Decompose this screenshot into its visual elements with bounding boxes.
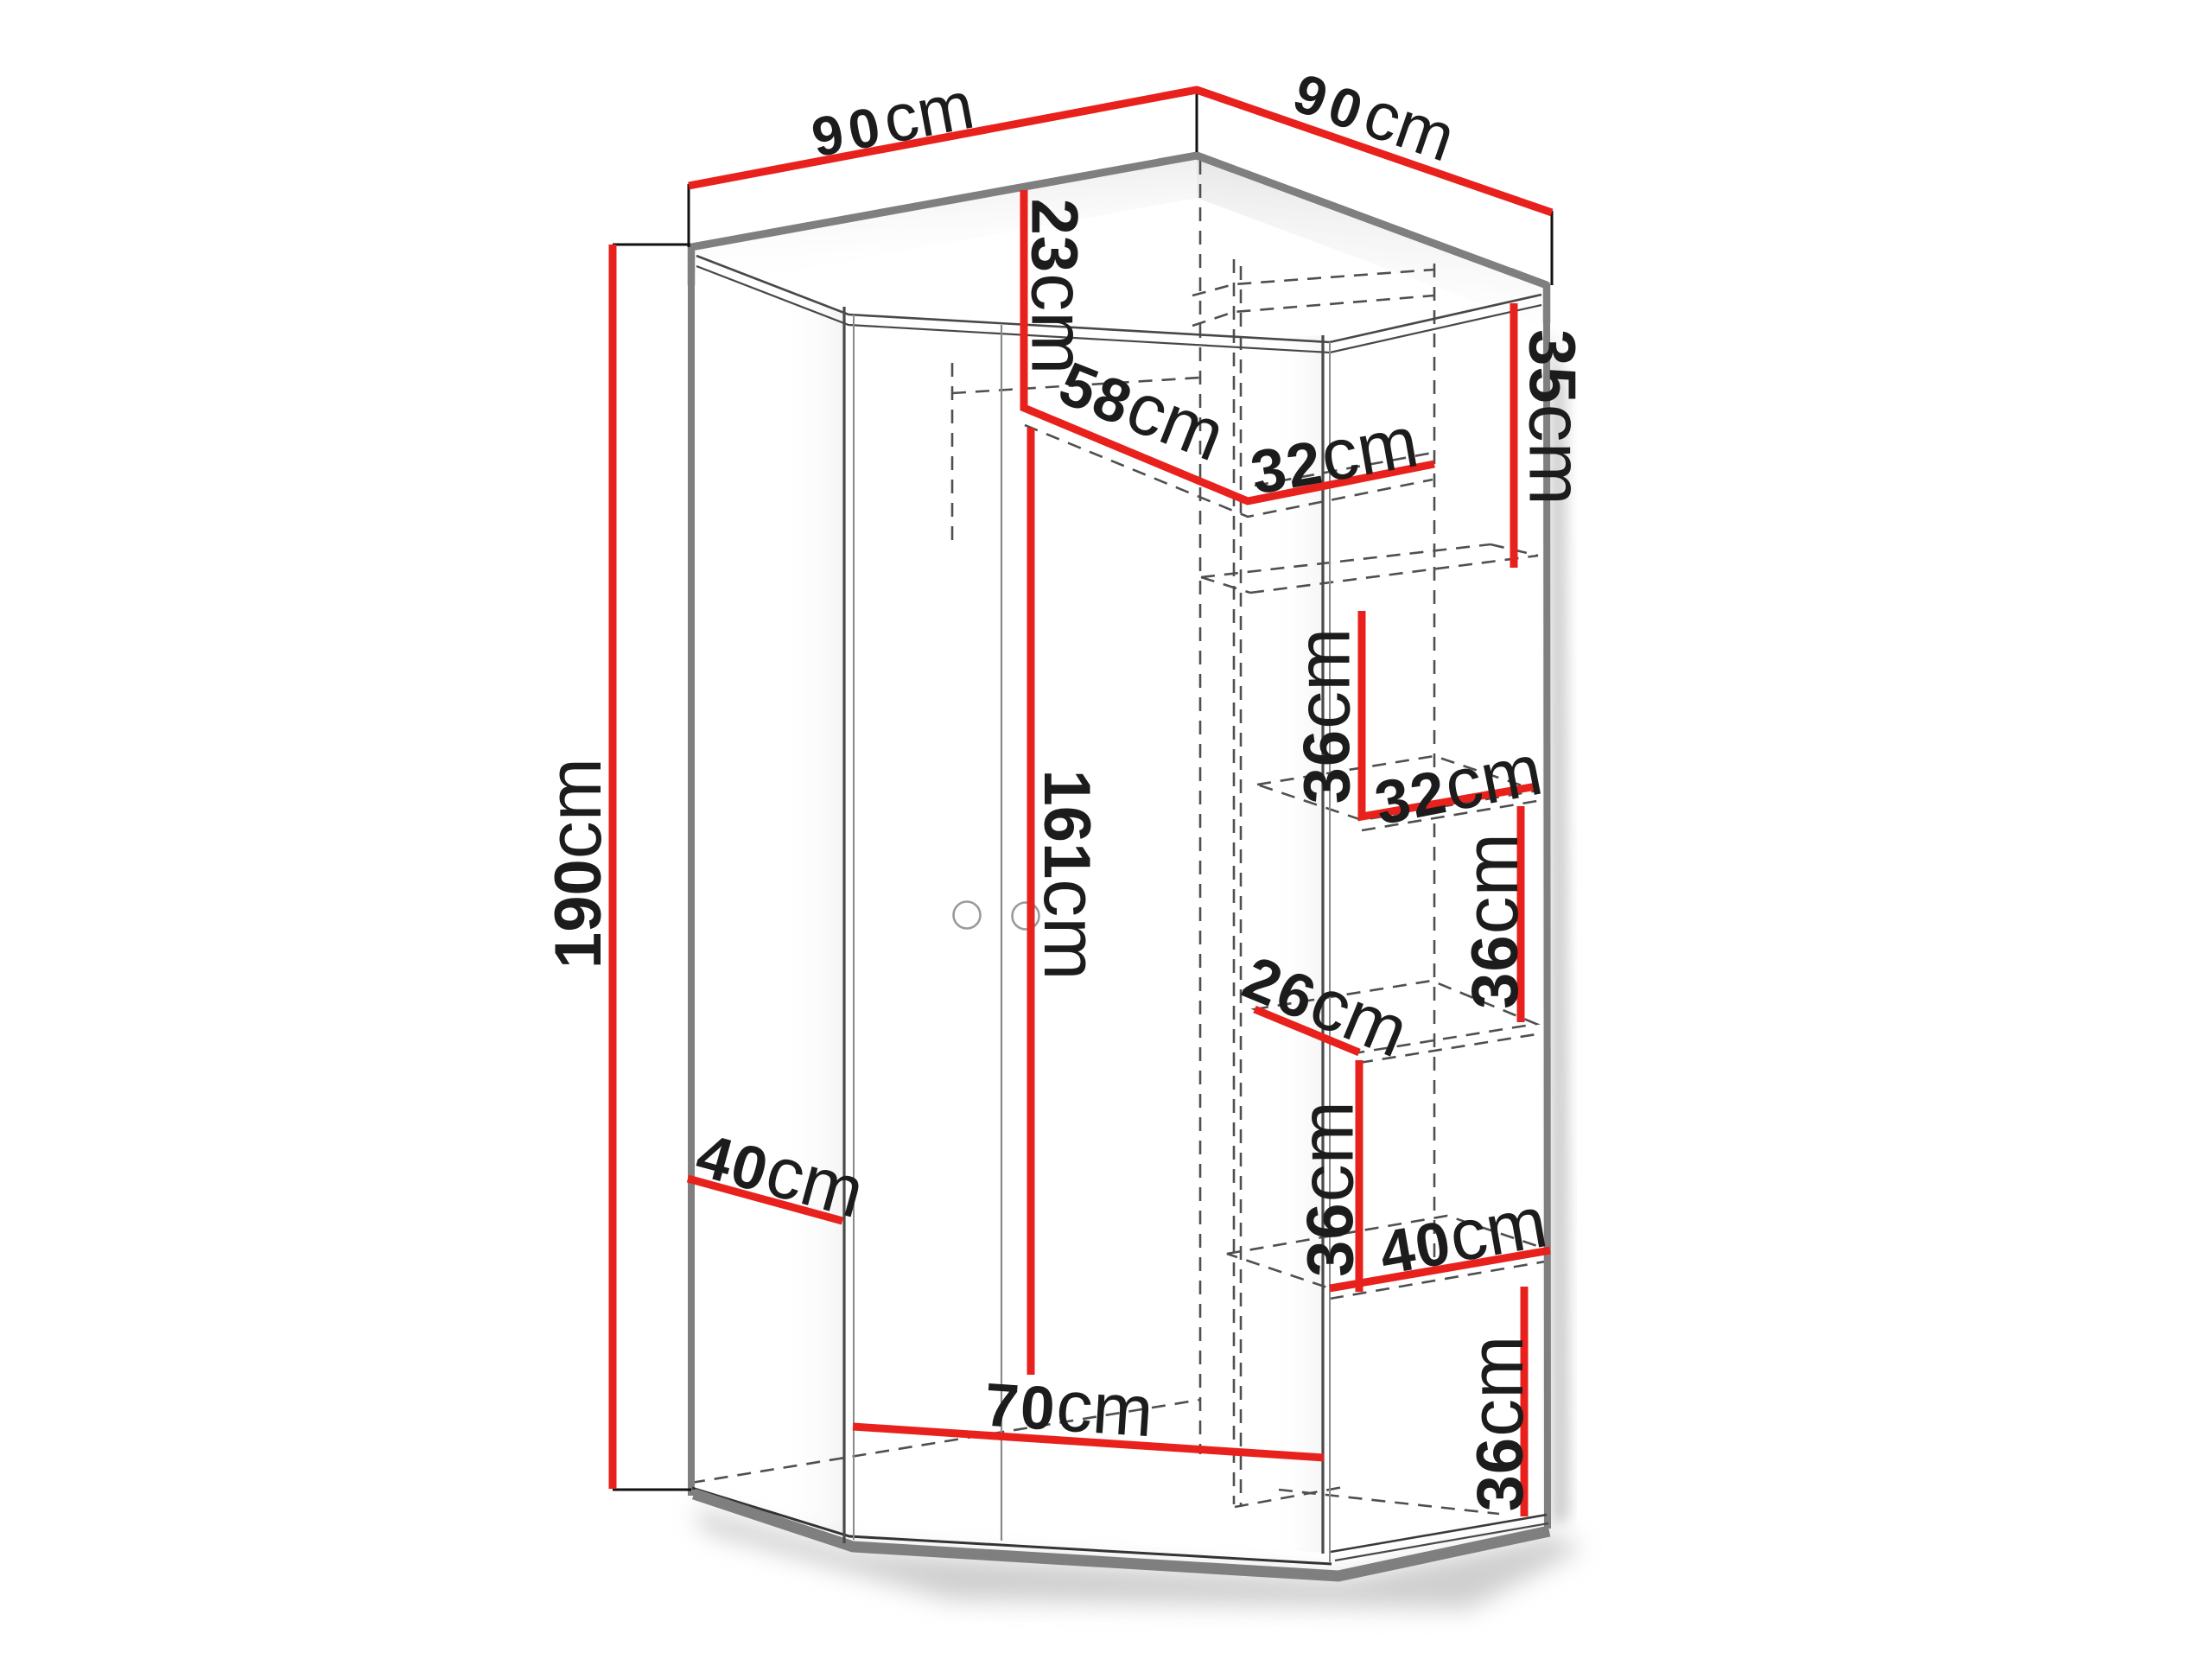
- svg-text:190cm: 190cm: [531, 758, 617, 969]
- svg-text:36cm: 36cm: [1453, 1336, 1539, 1512]
- svg-text:36cm: 36cm: [1284, 1101, 1370, 1277]
- svg-text:161cm: 161cm: [1028, 769, 1114, 980]
- svg-text:36cm: 36cm: [1281, 628, 1366, 804]
- svg-text:35cm: 35cm: [1514, 329, 1599, 505]
- svg-text:36cm: 36cm: [1448, 833, 1534, 1009]
- svg-text:70cm: 70cm: [982, 1360, 1156, 1452]
- svg-text:23cm: 23cm: [1016, 199, 1102, 375]
